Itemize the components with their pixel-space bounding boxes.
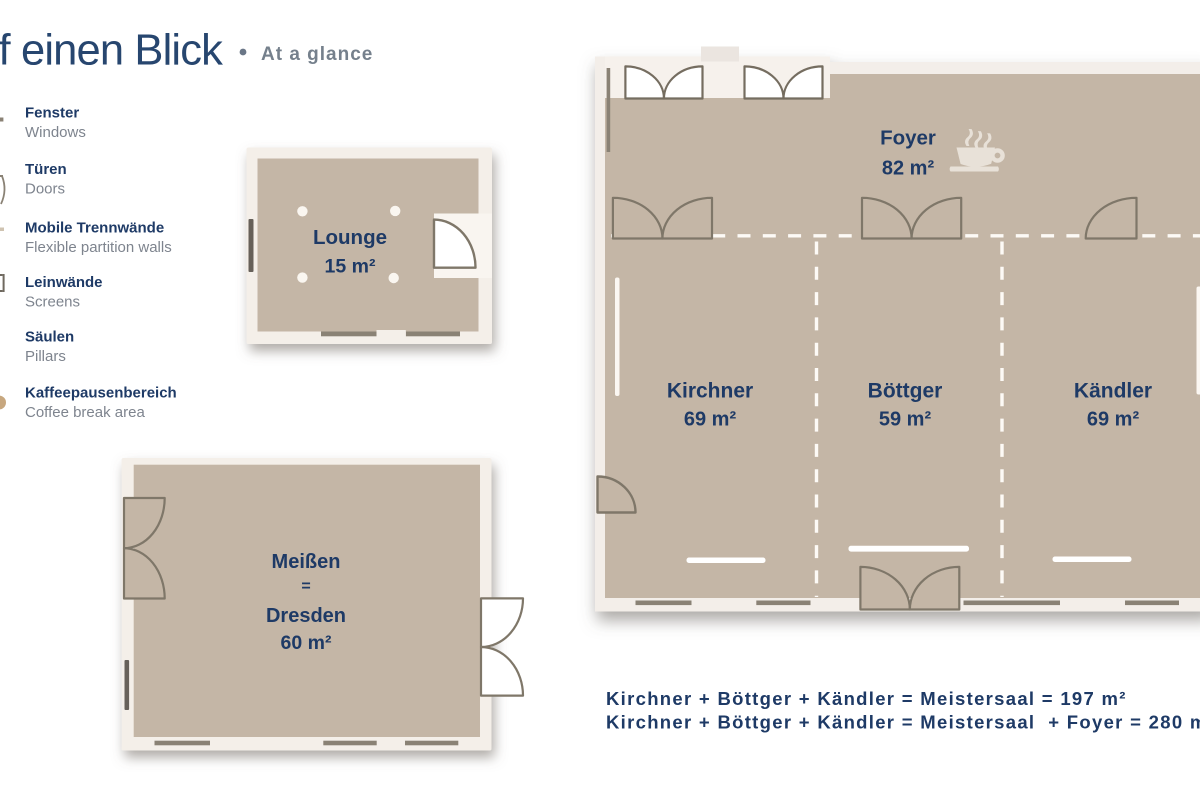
svg-text:15 m²: 15 m²: [325, 256, 376, 278]
svg-text:59 m²: 59 m²: [879, 409, 932, 431]
svg-text:Lounge: Lounge: [313, 226, 387, 249]
svg-text:Screens: Screens: [25, 294, 80, 311]
svg-text:Meißen: Meißen: [272, 551, 341, 573]
svg-text:Auf einen Blick: Auf einen Blick: [0, 27, 223, 75]
svg-text:Leinwände: Leinwände: [25, 274, 103, 291]
svg-text:60 m²: 60 m²: [281, 632, 332, 654]
svg-text:At a glance: At a glance: [261, 44, 373, 65]
svg-text:Dresden: Dresden: [266, 605, 346, 627]
svg-text:Doors: Doors: [25, 181, 65, 198]
svg-text:=: =: [301, 578, 310, 595]
svg-text:Kändler: Kändler: [1074, 380, 1152, 403]
svg-text:Kirchner + Böttger + Kändler =: Kirchner + Böttger + Kändler = Meistersa…: [606, 712, 1200, 733]
svg-text:82 m²: 82 m²: [882, 158, 935, 180]
svg-text:Windows: Windows: [25, 124, 86, 141]
svg-text:Kirchner: Kirchner: [667, 380, 753, 403]
svg-text:Säulen: Säulen: [25, 329, 74, 346]
svg-text:Fenster: Fenster: [25, 105, 79, 122]
svg-text:69 m²: 69 m²: [1087, 409, 1140, 431]
svg-text:Flexible partition walls: Flexible partition walls: [25, 239, 172, 256]
svg-text:Türen: Türen: [25, 161, 67, 178]
svg-text:Mobile Trennwände: Mobile Trennwände: [25, 220, 164, 237]
svg-text:Kirchner + Böttger + Kändler =: Kirchner + Böttger + Kändler = Meistersa…: [606, 688, 1127, 709]
svg-text:Pillars: Pillars: [25, 348, 66, 365]
svg-text:Foyer: Foyer: [880, 127, 936, 150]
svg-text:Böttger: Böttger: [868, 380, 943, 403]
svg-text:Coffee break area: Coffee break area: [25, 404, 145, 421]
svg-text:69 m²: 69 m²: [684, 409, 737, 431]
svg-text:Kaffeepausenbereich: Kaffeepausenbereich: [25, 385, 177, 402]
